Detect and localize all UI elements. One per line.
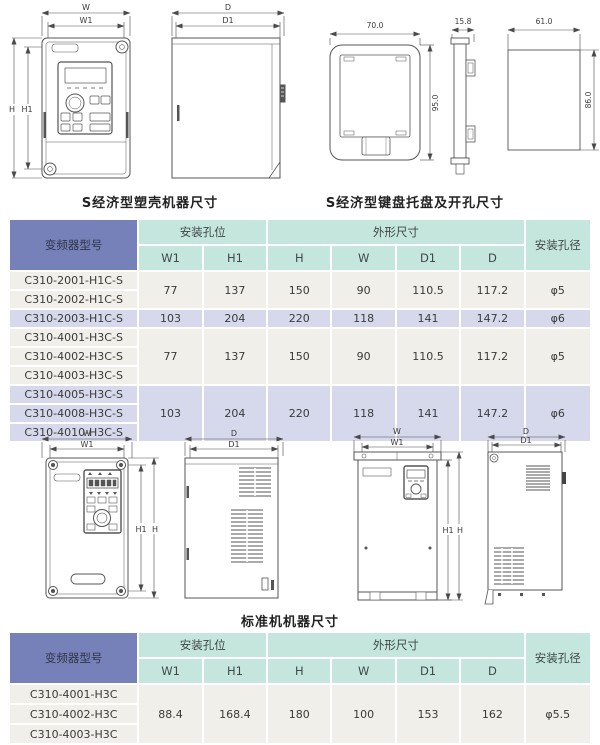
tray-front-view xyxy=(330,45,420,160)
col-header-d: D xyxy=(461,659,523,683)
model-cell: C310-2001-H1C-S xyxy=(10,272,137,289)
value-cell: 153 xyxy=(397,685,459,743)
value-cell: 180 xyxy=(268,685,330,743)
col-header-w1: W1 xyxy=(139,246,201,270)
value-cell: 77 xyxy=(139,329,201,384)
value-cell: 118 xyxy=(332,310,394,327)
tray-width-dim: 70.0 xyxy=(367,21,384,30)
caption-s-economy-tray: S经济型键盘托盘及开孔尺寸 xyxy=(300,192,530,211)
model-cell: C310-4002-H3C-S xyxy=(10,348,137,365)
col-header-model: 变频器型号 xyxy=(10,220,137,270)
model-cell: C310-4005-H3C-S xyxy=(10,386,137,403)
value-cell: 103 xyxy=(139,310,201,327)
value-cell: 117.2 xyxy=(461,272,523,308)
dim-w-label: W xyxy=(83,429,91,438)
col-header-h1: H1 xyxy=(204,659,266,683)
dim-d1-label: D1 xyxy=(228,440,239,449)
value-cell: 137 xyxy=(204,272,266,308)
value-cell: 90 xyxy=(332,272,394,308)
dim-w1-label: W1 xyxy=(81,440,94,449)
col-header-w: W xyxy=(332,246,394,270)
value-cell: 110.5 xyxy=(397,272,459,308)
dim-w-label: W xyxy=(393,428,401,436)
machine-front-view xyxy=(354,452,441,600)
dim-h1-label: H1 xyxy=(135,525,146,534)
model-cell: C310-4008-H3C-S xyxy=(10,405,137,422)
col-header-h: H xyxy=(268,246,330,270)
table-row: C310-4001-H3C-S7713715090110.5117.2φ5 xyxy=(10,329,590,346)
col-header-w1: W1 xyxy=(139,659,201,683)
col-header-h: H xyxy=(268,659,330,683)
caption-standard-machine: 标准机机器尺寸 xyxy=(150,611,430,630)
table-row: C310-4005-H3C-S103204220118141147.2φ6 xyxy=(10,386,590,403)
s-economy-inverter-drawing: W W1 H H1 D D1 xyxy=(0,0,300,190)
col-group-mount: 安装孔位 xyxy=(139,633,266,657)
value-cell: φ5 xyxy=(526,272,590,308)
table-row: C310-4001-H3C88.4168.4180100153162φ5.5 xyxy=(10,685,590,703)
dim-d-label: D xyxy=(225,3,231,12)
value-cell: 110.5 xyxy=(397,329,459,384)
value-cell: 100 xyxy=(332,685,394,743)
col-header-hole: 安装孔径 xyxy=(526,220,590,270)
col-header-w: W xyxy=(332,659,394,683)
col-header-model: 变频器型号 xyxy=(10,633,137,683)
dim-w-label: W xyxy=(82,3,90,12)
machine-front-view xyxy=(46,458,128,598)
tray-thickness-dim: 15.8 xyxy=(455,17,472,26)
dim-h1-label: H1 xyxy=(442,526,453,535)
standard-machine-large-drawing: W W1 H1 H D D1 xyxy=(300,428,600,613)
cutout-view xyxy=(508,50,580,150)
dim-d-label: D xyxy=(231,429,237,438)
standard-machine-dimension-table: 变频器型号 安装孔位 外形尺寸 安装孔径 W1 H1 H W D1 D C310… xyxy=(8,631,592,745)
tray-height-dim: 95.0 xyxy=(431,94,440,111)
value-cell: 204 xyxy=(204,310,266,327)
dim-h-label: H xyxy=(457,526,463,535)
value-cell: φ5.5 xyxy=(526,685,590,743)
value-cell: 220 xyxy=(268,310,330,327)
standard-machine-small-drawing: W W1 H1 H D D1 xyxy=(0,428,300,613)
value-cell: 77 xyxy=(139,272,201,308)
dim-h-label: H xyxy=(9,105,15,114)
value-cell: 150 xyxy=(268,272,330,308)
col-header-hole: 安装孔径 xyxy=(526,633,590,683)
dim-d1-label: D1 xyxy=(520,436,531,445)
table-row: C310-2003-H1C-S103204220118141147.2φ6 xyxy=(10,310,590,327)
inverter-side-view xyxy=(172,38,285,178)
cutout-width-dim: 61.0 xyxy=(536,17,553,26)
table-row: C310-2001-H1C-S7713715090110.5117.2φ5 xyxy=(10,272,590,289)
model-cell: C310-4003-H3C xyxy=(10,725,137,743)
dim-d-label: D xyxy=(523,428,529,436)
value-cell: 162 xyxy=(461,685,523,743)
value-cell: 147.2 xyxy=(461,310,523,327)
machine-side-view xyxy=(485,452,566,604)
dim-d1-label: D1 xyxy=(222,16,233,25)
value-cell: 88.4 xyxy=(139,685,201,743)
value-cell: φ6 xyxy=(526,310,590,327)
model-cell: C310-4003-H3C-S xyxy=(10,367,137,384)
keypad-tray-drawing: 70.0 15.8 61.0 95.0 86.0 xyxy=(300,0,600,190)
col-group-outline: 外形尺寸 xyxy=(268,220,524,244)
col-header-d: D xyxy=(461,246,523,270)
col-header-d1: D1 xyxy=(397,246,459,270)
model-cell: C310-4001-H3C-S xyxy=(10,329,137,346)
model-cell: C310-2003-H1C-S xyxy=(10,310,137,327)
dim-h1-label: H1 xyxy=(21,105,32,114)
model-cell: C310-4002-H3C xyxy=(10,705,137,723)
dim-w1-label: W1 xyxy=(80,16,93,25)
cutout-height-dim: 86.0 xyxy=(584,91,593,108)
value-cell: 150 xyxy=(268,329,330,384)
dim-w1-label: W1 xyxy=(391,438,404,447)
caption-s-economy-case: S经济型塑壳机器尺寸 xyxy=(10,192,290,211)
col-header-h1: H1 xyxy=(204,246,266,270)
value-cell: 90 xyxy=(332,329,394,384)
tray-side-view xyxy=(451,38,475,174)
value-cell: φ5 xyxy=(526,329,590,384)
model-cell: C310-4001-H3C xyxy=(10,685,137,703)
value-cell: 141 xyxy=(397,310,459,327)
col-header-d1: D1 xyxy=(397,659,459,683)
s-economy-dimension-table: 变频器型号 安装孔位 外形尺寸 安装孔径 W1 H1 H W D1 D C310… xyxy=(8,218,592,443)
col-group-outline: 外形尺寸 xyxy=(268,633,524,657)
dim-h-label: H xyxy=(152,525,158,534)
inverter-front-view xyxy=(42,38,130,178)
value-cell: 117.2 xyxy=(461,329,523,384)
model-cell: C310-2002-H1C-S xyxy=(10,291,137,308)
value-cell: 137 xyxy=(204,329,266,384)
col-group-mount: 安装孔位 xyxy=(139,220,266,244)
value-cell: 168.4 xyxy=(204,685,266,743)
machine-side-view xyxy=(185,458,278,598)
